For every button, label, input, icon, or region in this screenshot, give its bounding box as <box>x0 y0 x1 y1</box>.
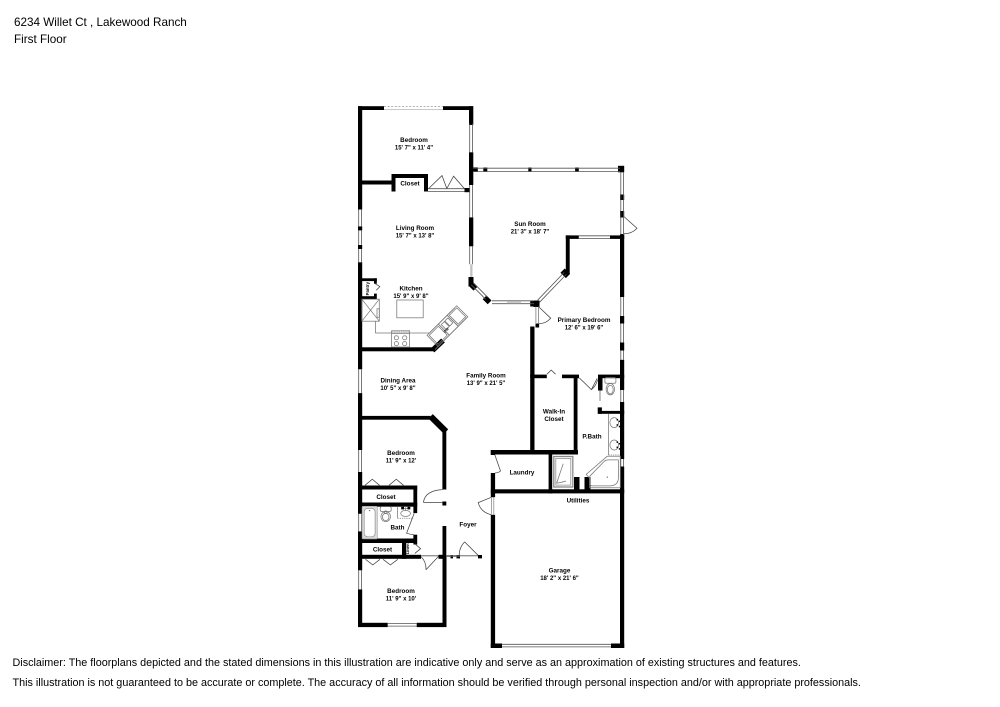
svg-text:Closet: Closet <box>544 416 564 423</box>
svg-text:Closet: Closet <box>400 180 420 187</box>
svg-text:Garage: Garage <box>549 568 571 575</box>
svg-text:Kitchen: Kitchen <box>399 286 422 293</box>
svg-text:P.Bath: P.Bath <box>582 434 601 441</box>
svg-text:Bath: Bath <box>391 525 405 532</box>
svg-text:10' 5" x 9' 8": 10' 5" x 9' 8" <box>380 386 415 392</box>
svg-text:Primary Bedroom: Primary Bedroom <box>558 317 611 324</box>
svg-text:18' 2" x 21' 6": 18' 2" x 21' 6" <box>540 576 579 582</box>
svg-text:15' 9" x 9' 8": 15' 9" x 9' 8" <box>393 294 428 300</box>
svg-text:Walk-In: Walk-In <box>543 409 565 416</box>
svg-text:13' 9" x 21' 5": 13' 9" x 21' 5" <box>467 381 506 387</box>
svg-text:Living Room: Living Room <box>396 225 435 232</box>
svg-text:Bedroom: Bedroom <box>400 137 428 144</box>
svg-text:Dining Area: Dining Area <box>380 378 416 385</box>
svg-text:11' 9" x 12': 11' 9" x 12' <box>386 459 417 465</box>
svg-text:Linen: Linen <box>405 543 410 554</box>
svg-text:12' 6" x 19' 6": 12' 6" x 19' 6" <box>565 326 604 332</box>
svg-text:Closet: Closet <box>376 494 396 501</box>
svg-text:11' 9" x 10': 11' 9" x 10' <box>386 597 417 603</box>
svg-text:Foyer: Foyer <box>459 522 477 529</box>
svg-text:Bedroom: Bedroom <box>387 588 415 595</box>
svg-text:Bedroom: Bedroom <box>387 450 415 457</box>
svg-text:15' 7" x 11' 4": 15' 7" x 11' 4" <box>395 146 433 152</box>
svg-text:Pantry: Pantry <box>365 281 370 295</box>
svg-text:Sun Room: Sun Room <box>514 221 546 228</box>
svg-text:Laundry: Laundry <box>510 470 535 477</box>
svg-text:15' 7" x 13' 8": 15' 7" x 13' 8" <box>396 234 435 240</box>
svg-text:Family Room: Family Room <box>466 373 506 380</box>
svg-text:21' 3" x 18' 7": 21' 3" x 18' 7" <box>511 230 550 236</box>
svg-text:Closet: Closet <box>373 547 393 554</box>
svg-text:Utilities: Utilities <box>567 498 590 505</box>
